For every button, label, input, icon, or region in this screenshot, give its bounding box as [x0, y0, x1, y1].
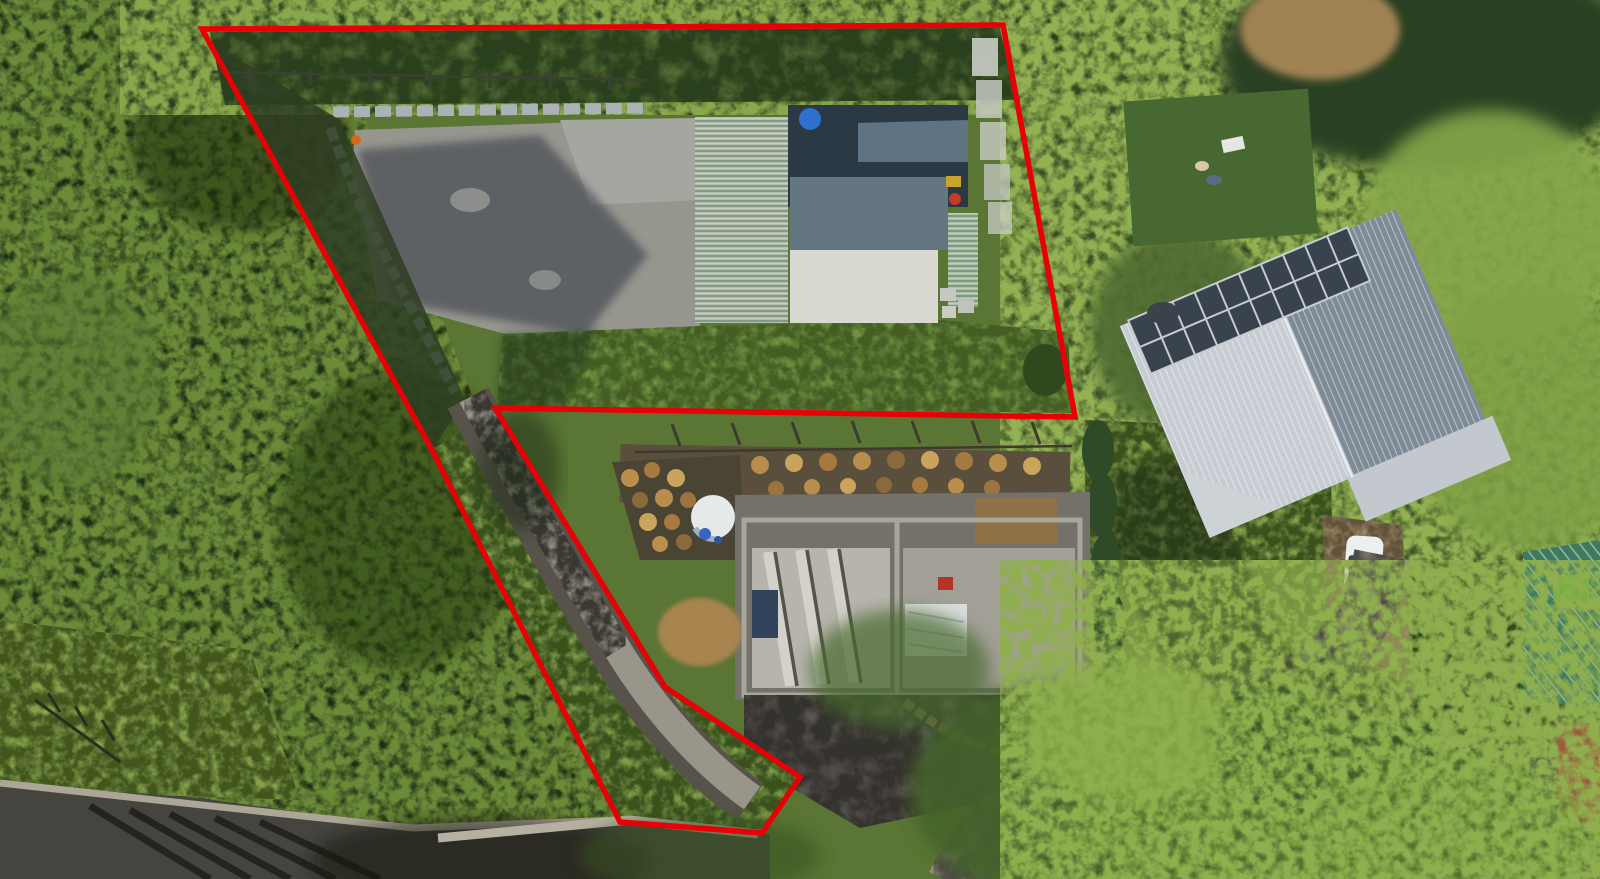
pad-light-dapple — [450, 188, 490, 212]
blue-barrel — [799, 108, 821, 130]
shed-roof-sage-corrugation — [695, 117, 788, 323]
retaining-wall-top — [333, 108, 648, 112]
red-item-construction — [938, 577, 953, 590]
satellite-dish — [1147, 302, 1179, 324]
yellow-item — [946, 176, 961, 187]
parcel-top-shrubs-texture — [210, 28, 1015, 105]
stepping-pad1 — [940, 288, 956, 301]
aerial-photo-stage — [0, 0, 1600, 879]
shed-roof-steel — [858, 120, 968, 162]
neighbour-lawn — [1123, 89, 1318, 247]
red-item-shed — [949, 193, 961, 205]
pad-light-dapple2 — [529, 270, 561, 290]
stepping-pad3 — [942, 306, 956, 318]
stepping-pad2 — [958, 300, 974, 313]
orange-pot — [351, 135, 361, 145]
canopy-sparkle — [1000, 560, 1600, 879]
strip-tree-shadow — [480, 410, 560, 530]
aerial-photo — [0, 0, 1600, 879]
dirt-mound — [658, 598, 742, 666]
person-figure — [1195, 161, 1209, 171]
person-figure2 — [1206, 175, 1222, 185]
tank-blue-patch — [699, 528, 711, 540]
navy-pit-cover — [752, 590, 778, 638]
shed — [695, 105, 978, 323]
shed-roof-light — [790, 250, 938, 323]
tank-blue-patch2 — [714, 536, 722, 544]
shed-roof-mid — [790, 177, 948, 250]
